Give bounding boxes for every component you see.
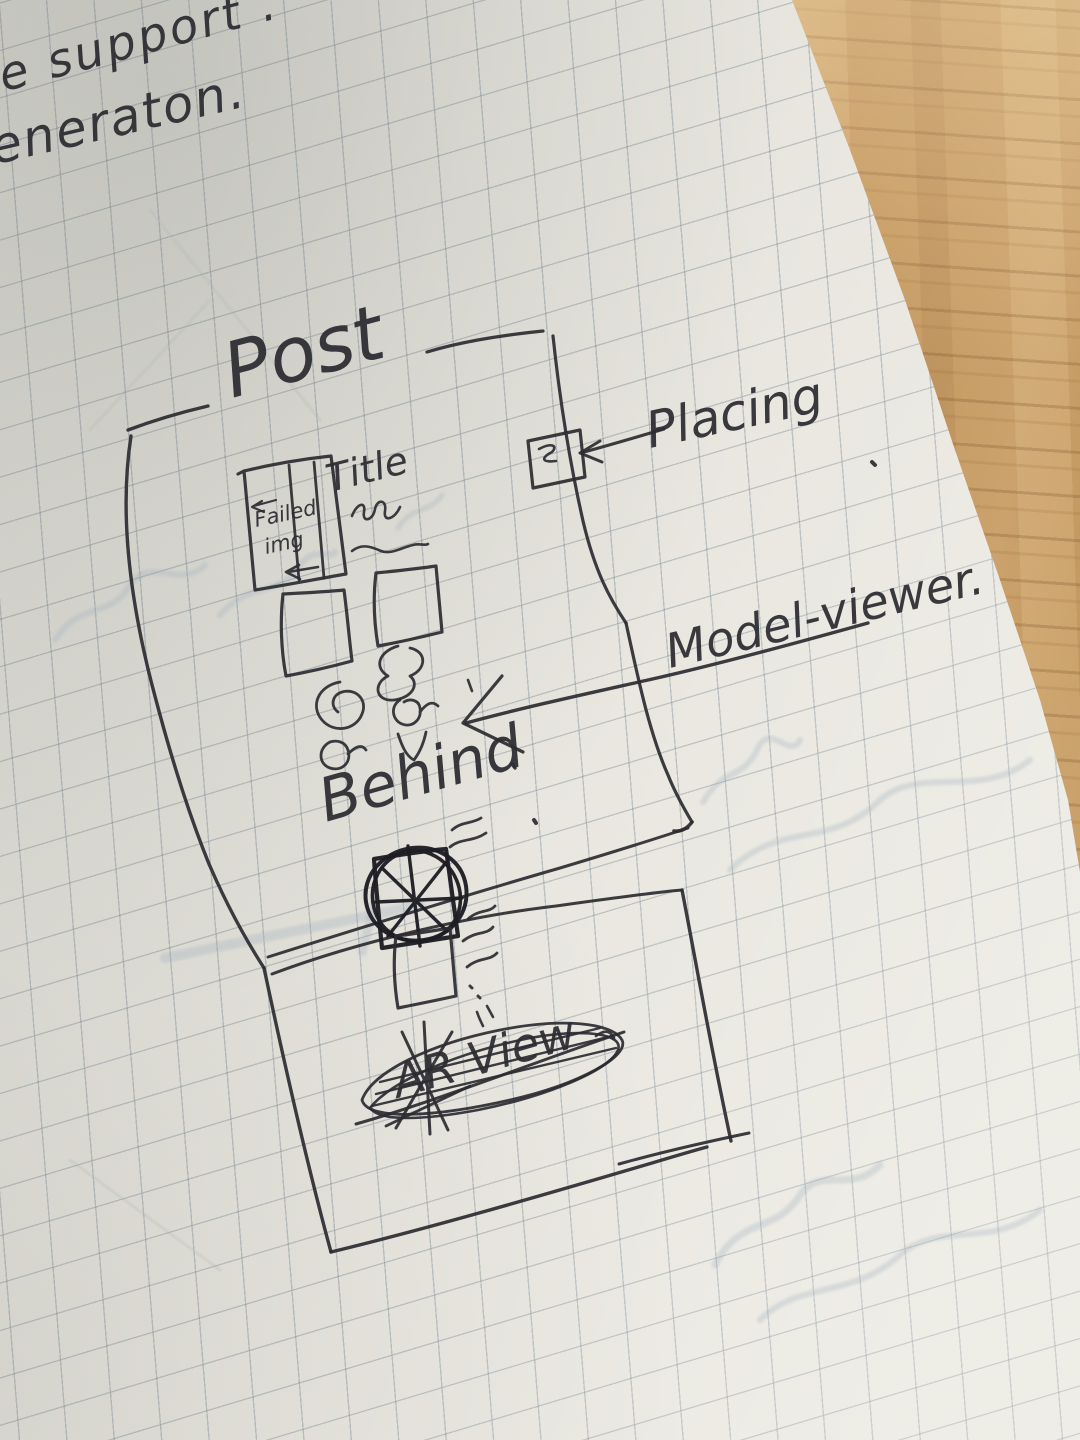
screen-frame-outline bbox=[126, 336, 692, 968]
failed-img-caption-line2: img bbox=[262, 527, 306, 559]
behind-label: Behind bbox=[311, 711, 532, 836]
model-viewer-label: Model-viewer. bbox=[660, 550, 989, 679]
placing-period bbox=[872, 462, 875, 465]
photo-of-sketch: ge support . generaton. Post bbox=[0, 0, 1080, 1440]
title-placeholder-label: Title bbox=[322, 438, 413, 501]
placing-label: Placing bbox=[640, 366, 828, 460]
post-screen-title: Post bbox=[214, 287, 396, 416]
placing-marker-square bbox=[528, 430, 585, 488]
behind-period bbox=[534, 820, 536, 823]
section-divider-lines bbox=[268, 828, 688, 974]
ghost-bleedthrough-marks bbox=[55, 210, 1040, 1320]
post-title-dash bbox=[427, 331, 543, 352]
